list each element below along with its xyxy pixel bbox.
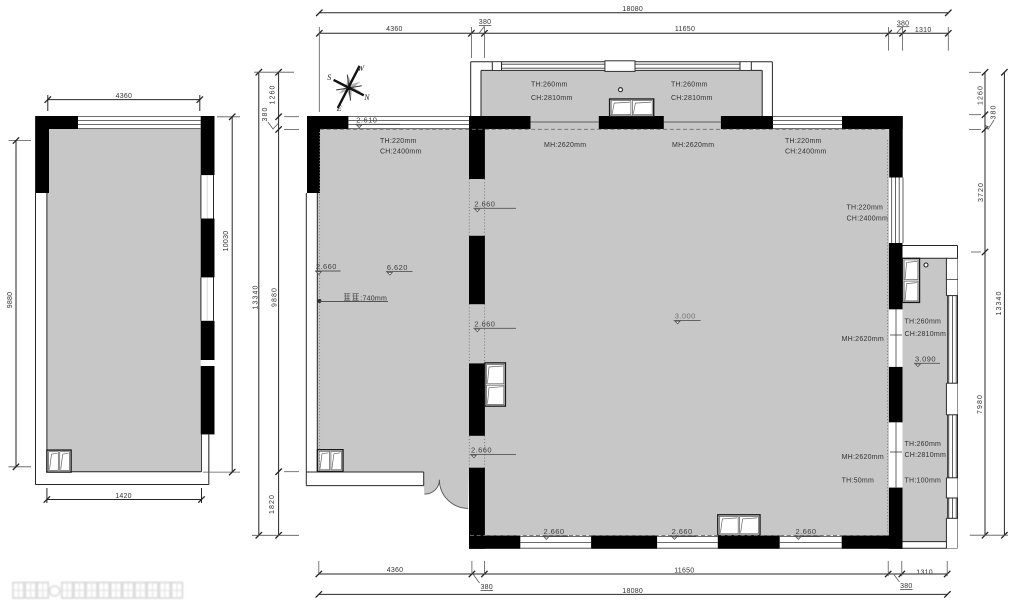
svg-text:1820: 1820 bbox=[269, 494, 276, 514]
svg-text:CH:2400mm: CH:2400mm bbox=[380, 148, 422, 155]
svg-text:380: 380 bbox=[481, 584, 493, 591]
svg-text:4360: 4360 bbox=[387, 567, 404, 574]
svg-text:E: E bbox=[336, 104, 342, 113]
svg-text:2.660: 2.660 bbox=[474, 320, 495, 329]
svg-text:CH:2400mm: CH:2400mm bbox=[785, 148, 827, 155]
svg-text:380: 380 bbox=[897, 20, 909, 27]
svg-text:10030: 10030 bbox=[223, 231, 230, 252]
svg-text:MH:2620mm: MH:2620mm bbox=[672, 142, 714, 149]
svg-text:CH:2810mm: CH:2810mm bbox=[671, 95, 713, 102]
svg-text:18080: 18080 bbox=[622, 6, 643, 13]
svg-text:13340: 13340 bbox=[253, 285, 260, 310]
svg-text:1260: 1260 bbox=[978, 85, 985, 105]
svg-text:MH:2620mm: MH:2620mm bbox=[842, 336, 884, 343]
svg-text:1310: 1310 bbox=[915, 27, 932, 34]
svg-text:380: 380 bbox=[479, 19, 491, 26]
svg-text:3.000: 3.000 bbox=[675, 312, 696, 321]
svg-text:CH:2810mm: CH:2810mm bbox=[531, 95, 573, 102]
svg-text:TH:260mm: TH:260mm bbox=[905, 319, 942, 326]
svg-text:4360: 4360 bbox=[386, 26, 403, 33]
svg-text::740mm: :740mm bbox=[360, 295, 387, 302]
svg-text:TH:50mm: TH:50mm bbox=[842, 478, 874, 485]
svg-text:MH:2620mm: MH:2620mm bbox=[544, 142, 586, 149]
svg-text:13340: 13340 bbox=[996, 291, 1003, 316]
svg-text:2.660: 2.660 bbox=[544, 527, 565, 536]
svg-text:2.660: 2.660 bbox=[316, 262, 337, 271]
svg-text:4360: 4360 bbox=[116, 93, 133, 100]
svg-text:1310: 1310 bbox=[916, 570, 933, 577]
svg-text:2.660: 2.660 bbox=[796, 527, 817, 536]
svg-text:9880: 9880 bbox=[7, 292, 14, 309]
svg-text:3.090: 3.090 bbox=[915, 355, 936, 364]
svg-text:6.620: 6.620 bbox=[387, 263, 408, 272]
svg-text:2.660: 2.660 bbox=[471, 446, 492, 455]
svg-text:CH:2400mm: CH:2400mm bbox=[847, 216, 889, 223]
svg-text:TH:220mm: TH:220mm bbox=[847, 205, 884, 212]
svg-text:7980: 7980 bbox=[977, 394, 984, 414]
svg-text:2.610: 2.610 bbox=[356, 116, 377, 125]
svg-text:9880: 9880 bbox=[272, 287, 279, 307]
svg-text:TH:260mm: TH:260mm bbox=[531, 82, 568, 89]
svg-text:CH:2810mm: CH:2810mm bbox=[905, 331, 947, 338]
svg-text:380: 380 bbox=[991, 105, 998, 120]
svg-text:TH:260mm: TH:260mm bbox=[905, 441, 942, 448]
svg-text:18080: 18080 bbox=[622, 588, 643, 595]
svg-text:S: S bbox=[327, 73, 331, 82]
svg-text:TH:220mm: TH:220mm bbox=[380, 138, 417, 145]
svg-text:MH:2620mm: MH:2620mm bbox=[842, 454, 884, 461]
svg-text:2.660: 2.660 bbox=[474, 200, 495, 209]
svg-text:1420: 1420 bbox=[115, 493, 132, 500]
svg-text:380: 380 bbox=[900, 583, 912, 590]
svg-text:TH:220mm: TH:220mm bbox=[785, 138, 822, 145]
svg-text:CH:2810mm: CH:2810mm bbox=[905, 452, 947, 459]
svg-text:TH:260mm: TH:260mm bbox=[671, 82, 708, 89]
svg-text:3720: 3720 bbox=[978, 182, 985, 202]
svg-text:TH:100mm: TH:100mm bbox=[905, 478, 942, 485]
svg-text:2.660: 2.660 bbox=[672, 527, 693, 536]
svg-text:N: N bbox=[363, 93, 370, 102]
svg-text:11650: 11650 bbox=[674, 568, 694, 575]
svg-text:1260: 1260 bbox=[270, 85, 277, 105]
svg-text:11650: 11650 bbox=[675, 26, 695, 33]
svg-text:380: 380 bbox=[262, 107, 269, 122]
